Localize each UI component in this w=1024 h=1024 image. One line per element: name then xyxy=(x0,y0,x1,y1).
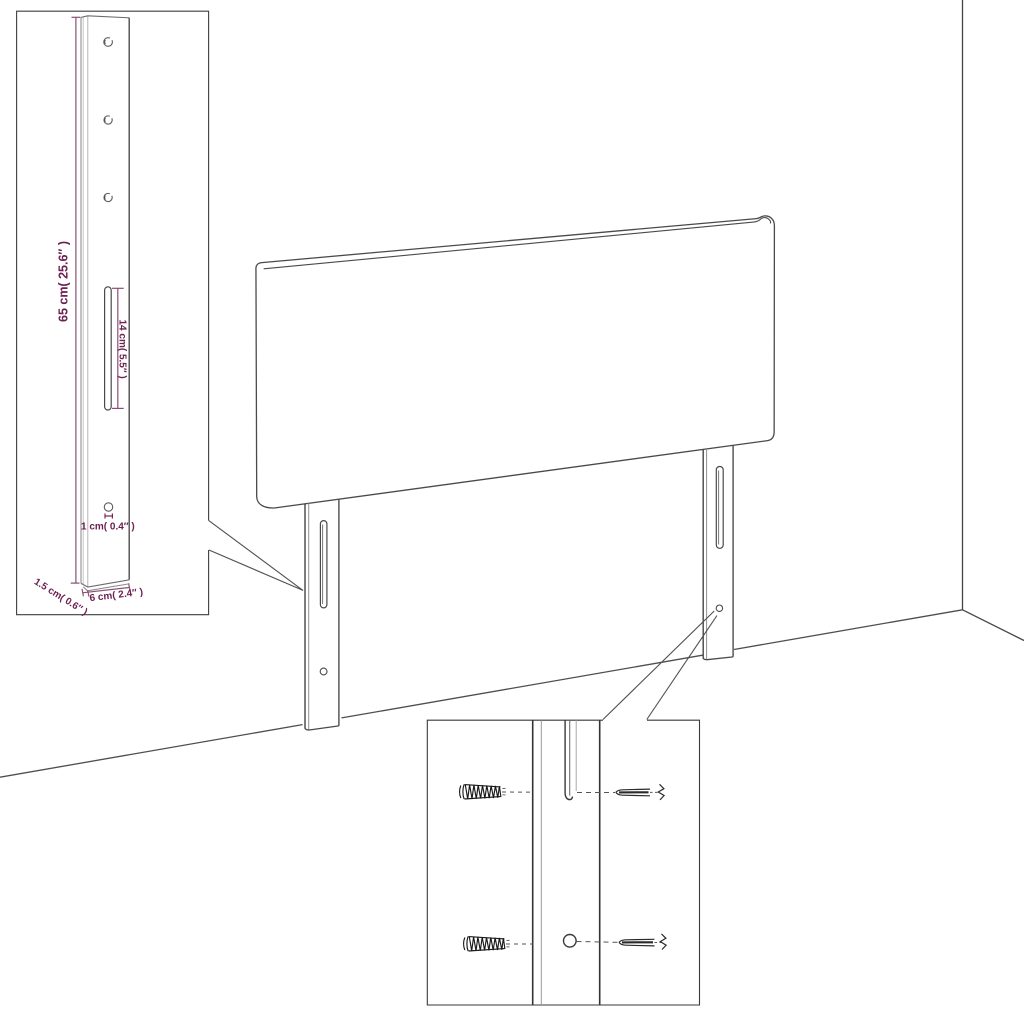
svg-text:65 cm( 25.6″ ): 65 cm( 25.6″ ) xyxy=(57,241,71,322)
svg-text:14 cm( 5.5″ ): 14 cm( 5.5″ ) xyxy=(116,320,127,379)
svg-text:1 cm( 0.4″ ): 1 cm( 0.4″ ) xyxy=(81,522,135,533)
